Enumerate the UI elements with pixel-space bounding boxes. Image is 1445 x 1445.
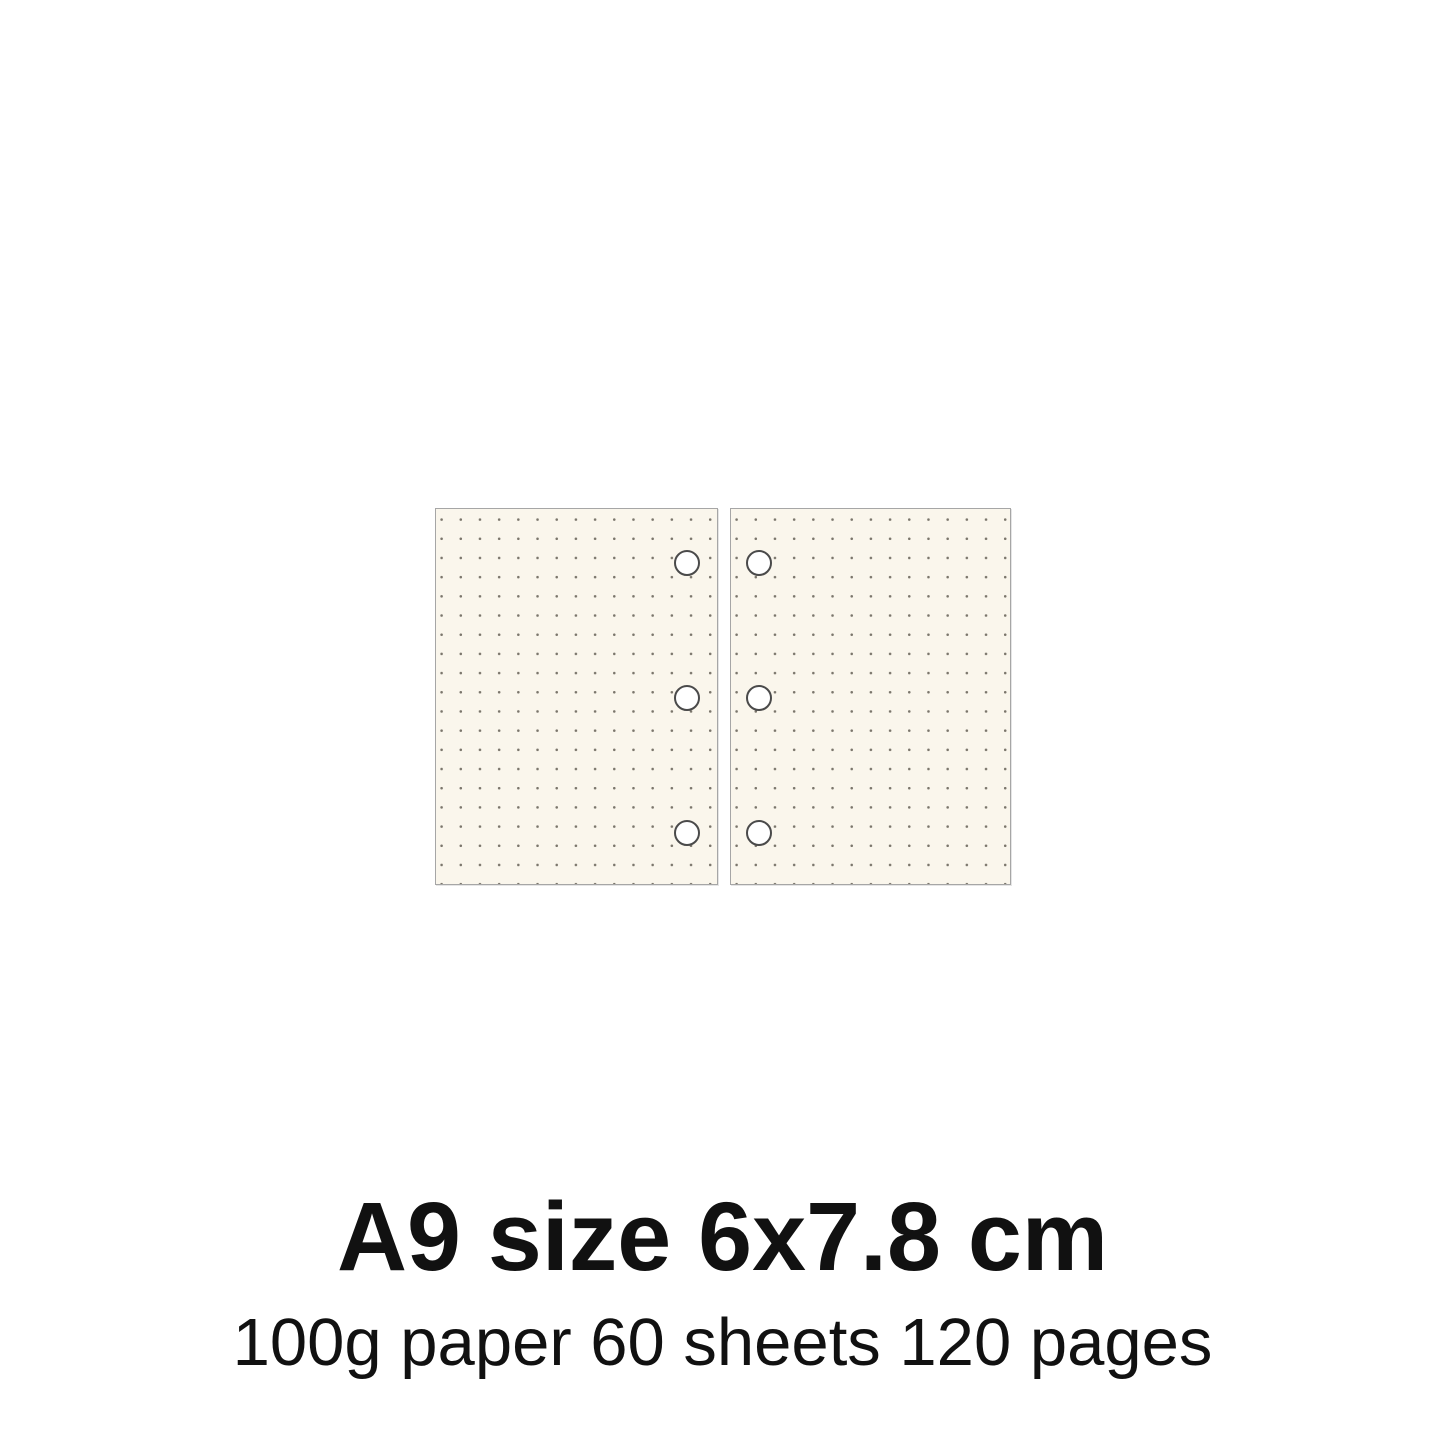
punch-hole	[674, 685, 700, 711]
paper-sheet-left	[435, 508, 718, 885]
product-spec-subtitle: 100g paper 60 sheets 120 pages	[0, 1309, 1445, 1376]
product-caption: A9 size 6x7.8 cm 100g paper 60 sheets 12…	[0, 1188, 1445, 1376]
paper-sheet-right	[730, 508, 1011, 885]
punch-hole	[674, 550, 700, 576]
product-image: A9 size 6x7.8 cm 100g paper 60 sheets 12…	[0, 0, 1445, 1445]
punch-hole	[746, 685, 772, 711]
punch-hole	[746, 820, 772, 846]
punch-hole	[674, 820, 700, 846]
punch-hole	[746, 550, 772, 576]
product-size-title: A9 size 6x7.8 cm	[0, 1188, 1445, 1285]
